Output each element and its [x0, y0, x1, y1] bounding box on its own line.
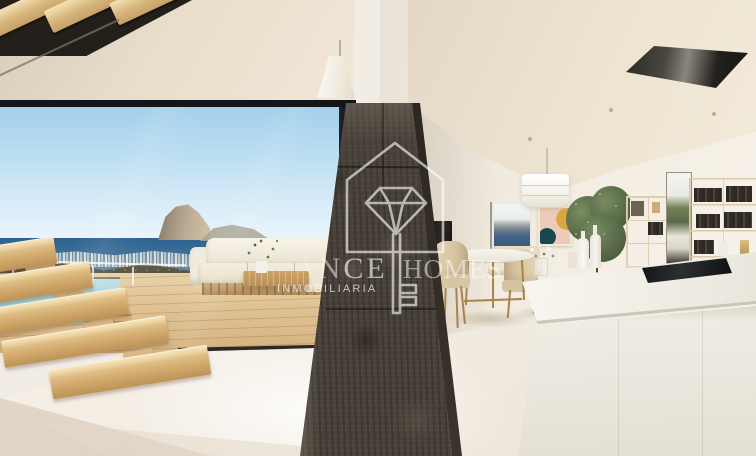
ceiling-spotlight — [712, 112, 716, 116]
shelf-gold-object — [652, 202, 660, 213]
shelf-white-object — [718, 242, 728, 255]
window-frame-top — [0, 100, 356, 107]
pendant-drum-lamp — [522, 174, 569, 207]
ceiling-spotlight — [609, 108, 613, 112]
ceiling-spotlight — [528, 137, 532, 141]
watermark-brand-fragment-left: ANCE — [294, 252, 388, 286]
pendant-lamp-cord — [546, 148, 548, 176]
villa-render-canvas: ANCE HOMES INMOBILIARIA — [0, 0, 756, 456]
ceramic-bottle-neck — [581, 231, 585, 240]
glass-vase — [534, 258, 548, 276]
ceramic-bottle — [577, 238, 589, 268]
watermark-subtitle: INMOBILIARIA — [277, 283, 377, 295]
shelf-books — [694, 240, 714, 254]
ceramic-bottle-neck — [593, 225, 597, 236]
shelf-books — [694, 188, 722, 202]
shelf-books — [696, 214, 720, 228]
ceramic-bottle — [590, 234, 601, 268]
shelf-books — [648, 222, 663, 235]
shelf-books — [726, 186, 752, 202]
cone-lamp-cord — [339, 40, 341, 57]
shelf-photo-frame — [630, 200, 645, 217]
shelf-books — [724, 212, 752, 228]
small-jar — [568, 252, 577, 268]
watermark-brand-fragment-right: HOMES — [403, 254, 503, 285]
shelf-white-vase — [632, 248, 640, 260]
